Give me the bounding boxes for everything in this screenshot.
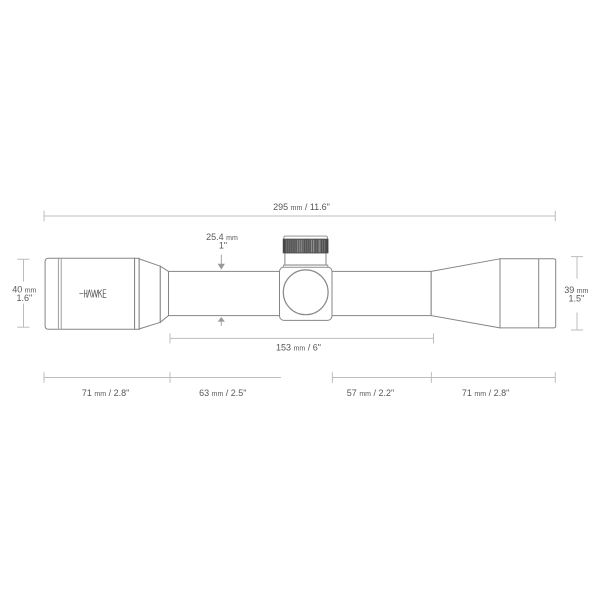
svg-text:71 mm / 2.8": 71 mm / 2.8" (462, 388, 509, 398)
svg-text:295 mm / 11.6": 295 mm / 11.6" (273, 202, 330, 212)
svg-text:1.6": 1.6" (16, 293, 32, 303)
svg-text:57 mm / 2.2": 57 mm / 2.2" (347, 388, 394, 398)
svg-text:63 mm / 2.5": 63 mm / 2.5" (199, 388, 246, 398)
svg-text:71 mm / 2.8": 71 mm / 2.8" (82, 388, 129, 398)
svg-text:1.5": 1.5" (568, 294, 584, 304)
svg-text:1": 1" (219, 241, 227, 251)
